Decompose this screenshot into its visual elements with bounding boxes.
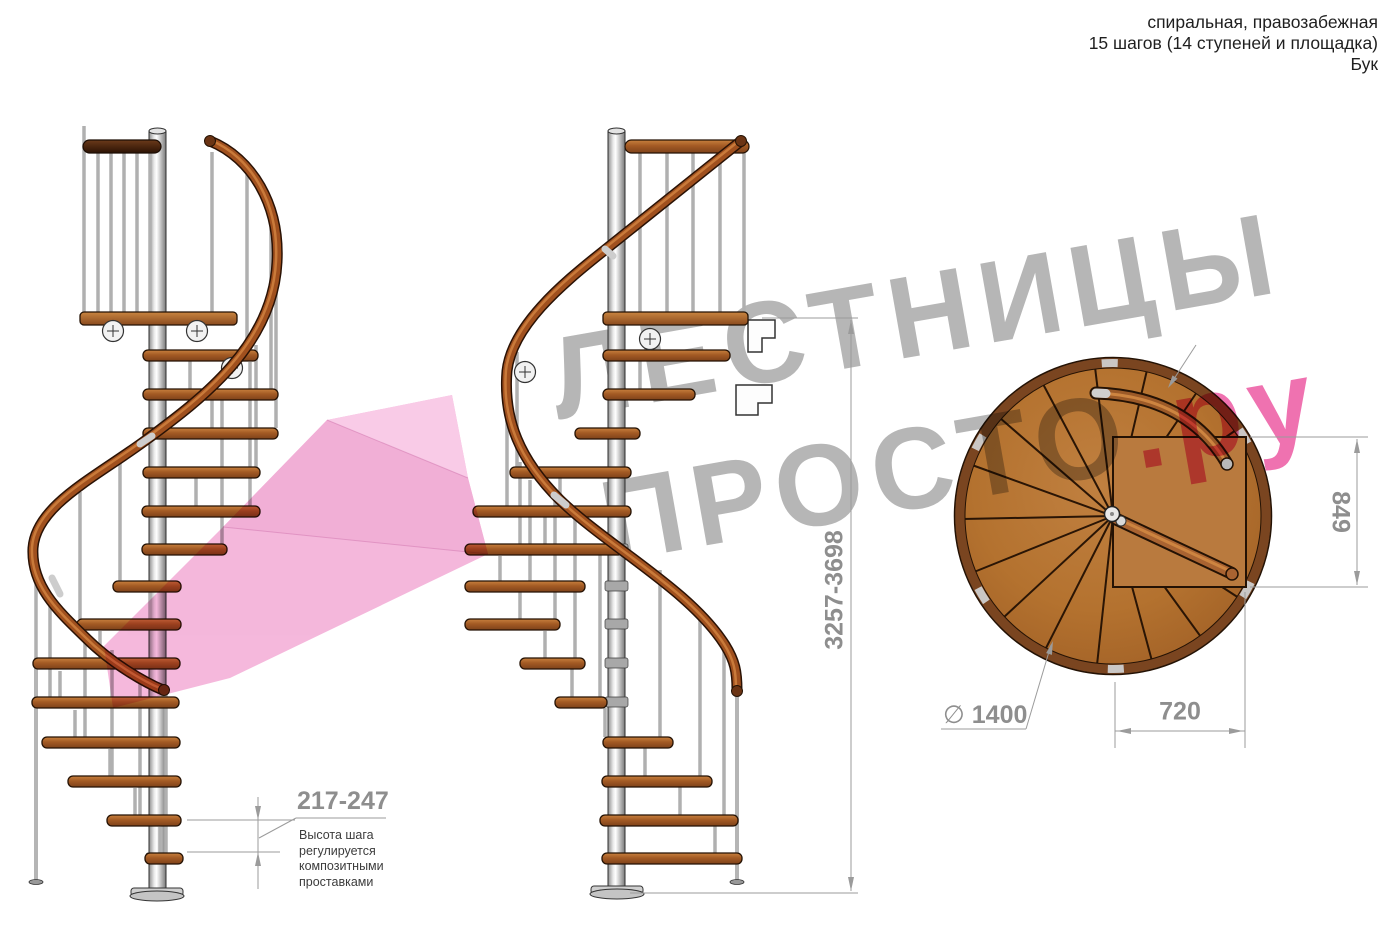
pink-arrow-watermark (0, 0, 1400, 943)
title-block: спиральная, правозабежная 15 шагов (14 с… (1089, 12, 1378, 75)
dim-plan-width: 849 (1326, 491, 1355, 533)
diameter-value: 1400 (972, 701, 1028, 730)
step-height-note: Высота шага регулируется композитными пр… (299, 828, 384, 890)
material: Бук (1089, 54, 1378, 75)
stair-type: спиральная, правозабежная (1089, 12, 1378, 33)
steps-count: 15 шагов (14 ступеней и площадка) (1089, 33, 1378, 54)
diameter-icon: ∅ (943, 700, 965, 730)
dim-diameter: ∅ 1400 (943, 700, 1027, 730)
dim-plan-depth: 720 (1159, 698, 1201, 727)
dim-step-height: 217-247 (297, 787, 389, 816)
drawing-page: { "header": { "line1": "спиральная, прав… (0, 0, 1400, 943)
dim-total-height: 3257-3698 (821, 530, 850, 650)
